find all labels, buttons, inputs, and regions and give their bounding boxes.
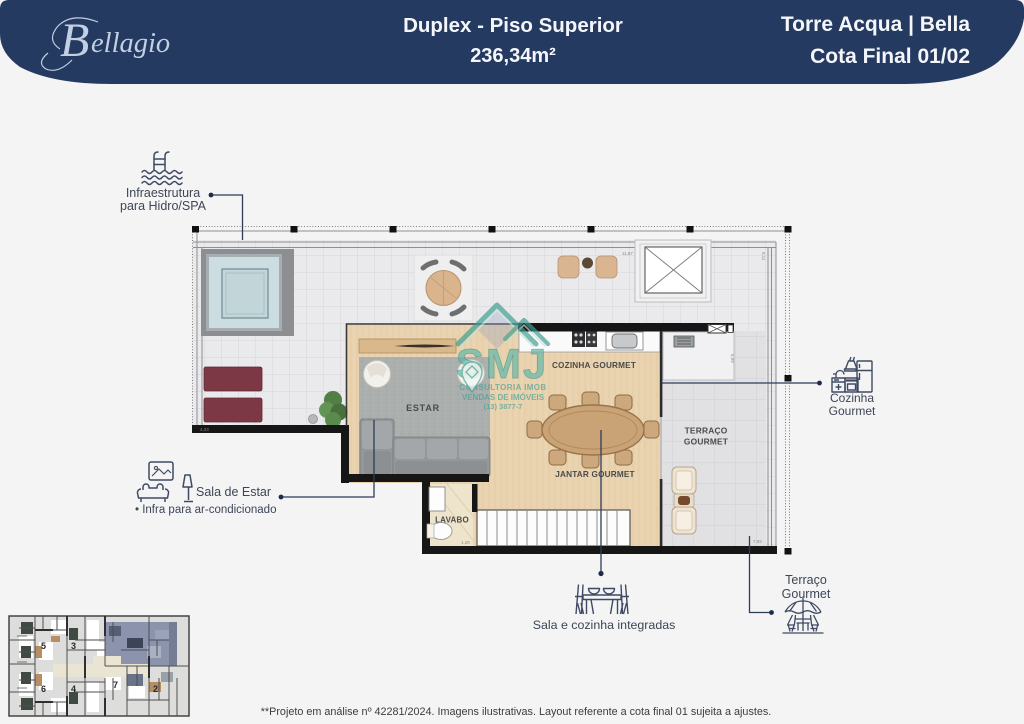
svg-text:1,20: 1,20: [461, 540, 470, 545]
svg-text:GOURMET: GOURMET: [684, 437, 729, 447]
svg-text:ellagio: ellagio: [91, 28, 170, 59]
svg-text:B: B: [60, 14, 89, 67]
svg-text:5,99: 5,99: [730, 354, 735, 363]
svg-text:Cota Final 01/02: Cota Final 01/02: [810, 45, 970, 68]
svg-text:Duplex - Piso Superior: Duplex - Piso Superior: [403, 14, 623, 37]
svg-text:Gourmet: Gourmet: [782, 587, 831, 601]
svg-text:3: 3: [71, 641, 76, 651]
svg-text:11,87: 11,87: [622, 251, 633, 256]
svg-text:8,11: 8,11: [761, 252, 766, 261]
svg-text:VENDAS DE IMÓVEIS: VENDAS DE IMÓVEIS: [462, 393, 545, 402]
svg-text:2: 2: [153, 684, 158, 694]
svg-text:7,92: 7,92: [753, 539, 762, 544]
svg-text:ESTAR: ESTAR: [406, 403, 440, 413]
svg-text:• Infra para ar-condicionado: • Infra para ar-condicionado: [135, 504, 276, 516]
svg-text:6: 6: [41, 684, 46, 694]
svg-text:236,34m²: 236,34m²: [470, 45, 556, 67]
svg-text:COZINHA GOURMET: COZINHA GOURMET: [552, 361, 636, 370]
svg-text:**Projeto em análise nº 42281/: **Projeto em análise nº 42281/2024. Imag…: [261, 706, 772, 718]
svg-text:Cozinha: Cozinha: [830, 391, 874, 405]
svg-text:para Hidro/SPA: para Hidro/SPA: [120, 199, 207, 213]
svg-text:Sala de Estar: Sala de Estar: [196, 485, 271, 499]
svg-text:4: 4: [71, 684, 76, 694]
svg-text:TERRAÇO: TERRAÇO: [685, 426, 728, 436]
svg-text:(13) 3877-7: (13) 3877-7: [484, 402, 523, 411]
svg-text:5: 5: [41, 641, 46, 651]
svg-text:Gourmet: Gourmet: [829, 404, 876, 418]
svg-text:4,23: 4,23: [200, 427, 209, 432]
svg-text:7: 7: [113, 680, 118, 690]
svg-text:JANTAR GOURMET: JANTAR GOURMET: [555, 470, 635, 479]
svg-text:Torre Acqua | Bella: Torre Acqua | Bella: [781, 13, 970, 36]
svg-text:Terraço: Terraço: [785, 573, 827, 587]
svg-text:Infraestrutura: Infraestrutura: [126, 186, 200, 200]
svg-text:Sala e cozinha integradas: Sala e cozinha integradas: [533, 618, 676, 632]
